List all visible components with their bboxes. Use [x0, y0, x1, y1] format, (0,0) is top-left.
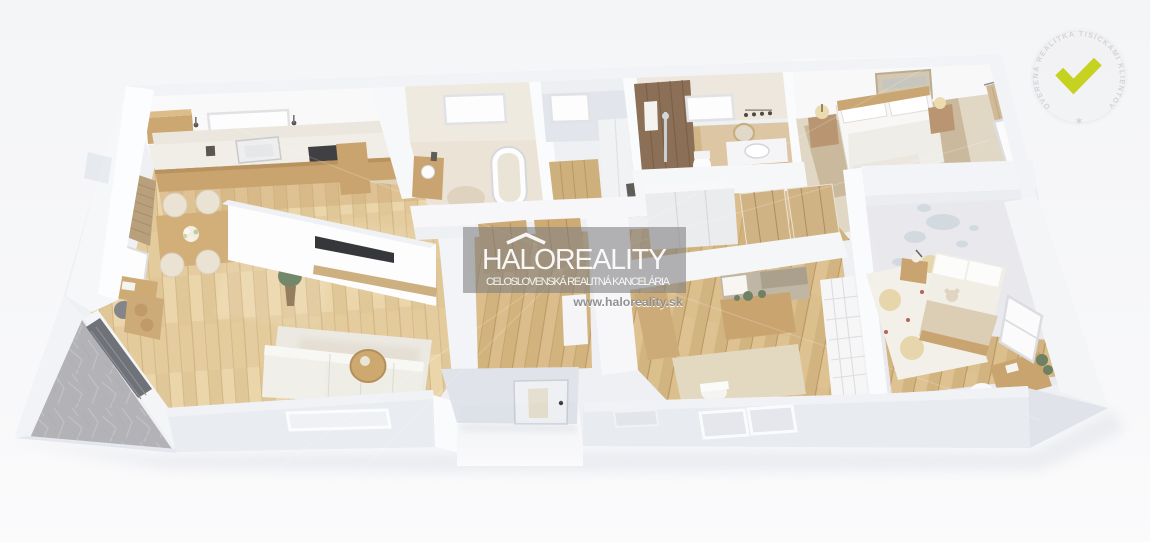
svg-text:✶: ✶ — [1075, 116, 1083, 126]
svg-text:www.haloreality.sk: www.haloreality.sk — [572, 295, 683, 309]
svg-text:CELOSLOVENSKÁ REALITNÁ KANCELÁ: CELOSLOVENSKÁ REALITNÁ KANCELÁRIA — [486, 275, 671, 288]
svg-text:HALOREALITY: HALOREALITY — [482, 244, 668, 276]
